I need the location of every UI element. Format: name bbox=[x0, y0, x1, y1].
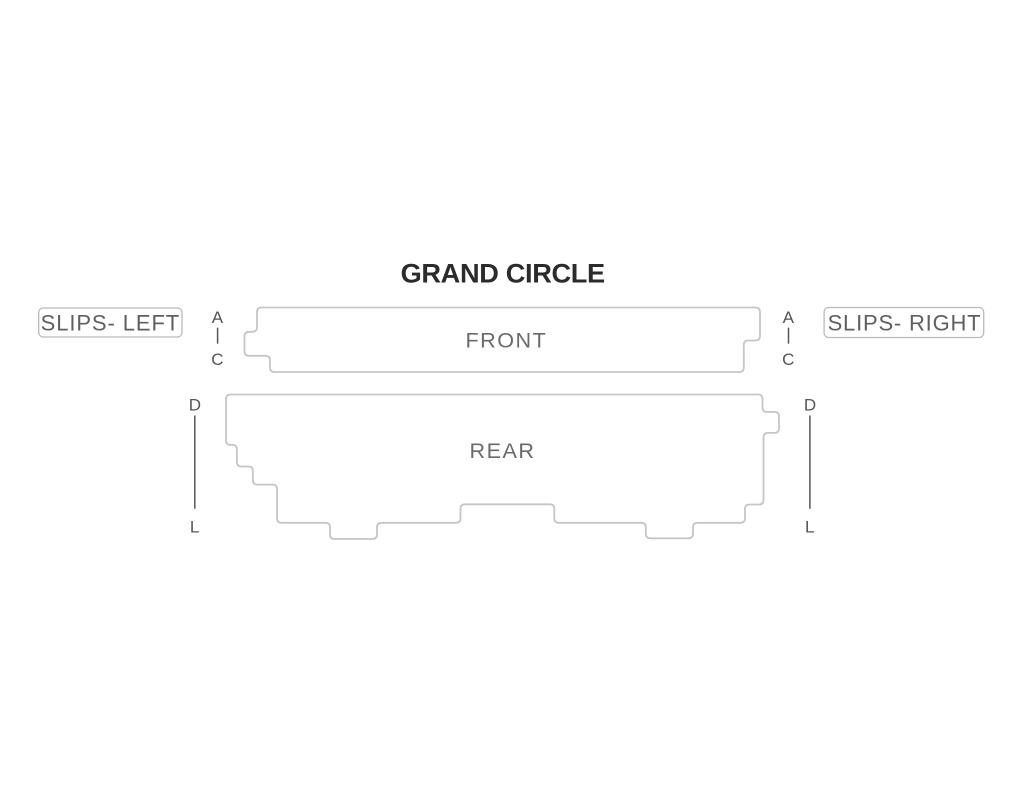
svg-text:FRONT: FRONT bbox=[465, 328, 547, 353]
svg-text:C: C bbox=[211, 350, 223, 369]
svg-text:SLIPS- LEFT: SLIPS- LEFT bbox=[41, 311, 181, 336]
svg-text:GRAND CIRCLE: GRAND CIRCLE bbox=[401, 257, 605, 288]
svg-text:A: A bbox=[783, 308, 795, 327]
svg-text:A: A bbox=[212, 308, 224, 327]
svg-text:C: C bbox=[782, 350, 794, 369]
svg-text:SLIPS- RIGHT: SLIPS- RIGHT bbox=[828, 311, 982, 336]
svg-text:D: D bbox=[189, 396, 201, 415]
svg-text:D: D bbox=[804, 396, 816, 415]
svg-text:REAR: REAR bbox=[470, 438, 536, 463]
svg-text:L: L bbox=[190, 518, 199, 537]
svg-text:L: L bbox=[805, 518, 814, 537]
